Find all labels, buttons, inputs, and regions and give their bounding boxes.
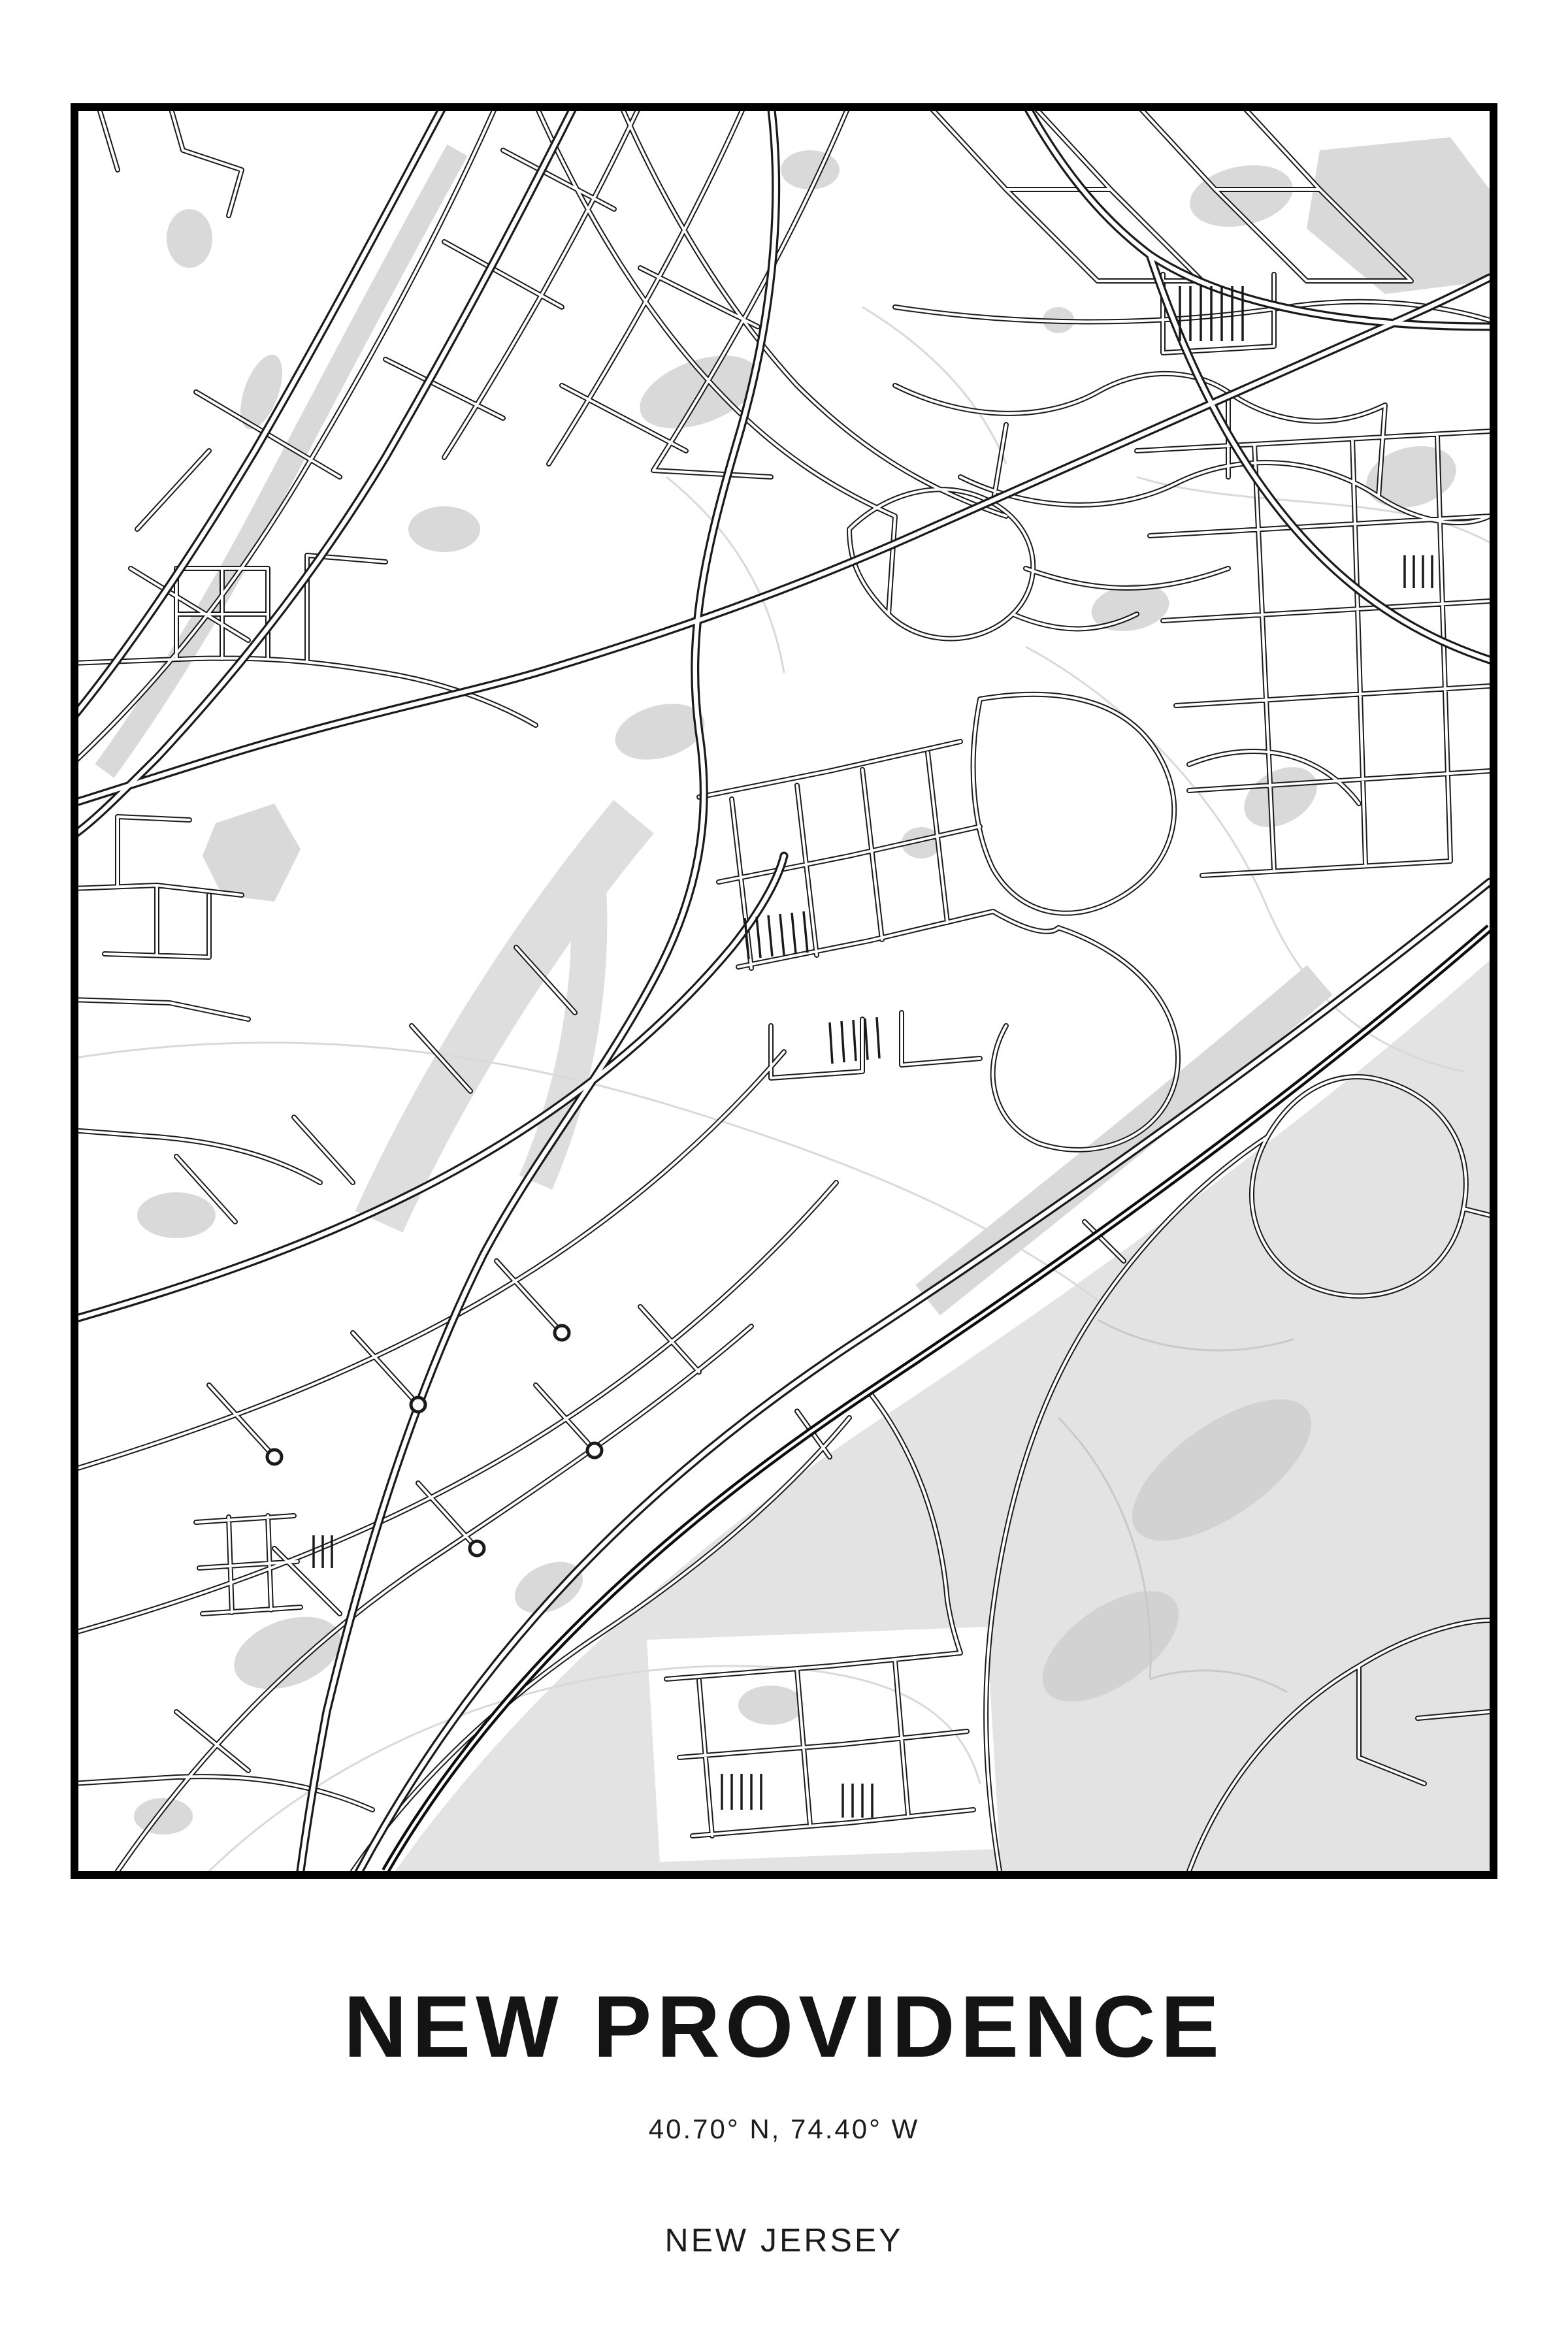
map-frame (71, 103, 1497, 1879)
street-map (78, 111, 1490, 1871)
poster-title: NEW PROVIDENCE (0, 1984, 1568, 2071)
poster-page: { "poster": { "title": "NEW PROVIDENCE",… (0, 0, 1568, 2352)
poster-region-label: NEW JERSEY (0, 2224, 1568, 2257)
map-green-areas (105, 137, 1490, 1871)
poster-coordinates: 40.70° N, 74.40° W (0, 2115, 1568, 2143)
